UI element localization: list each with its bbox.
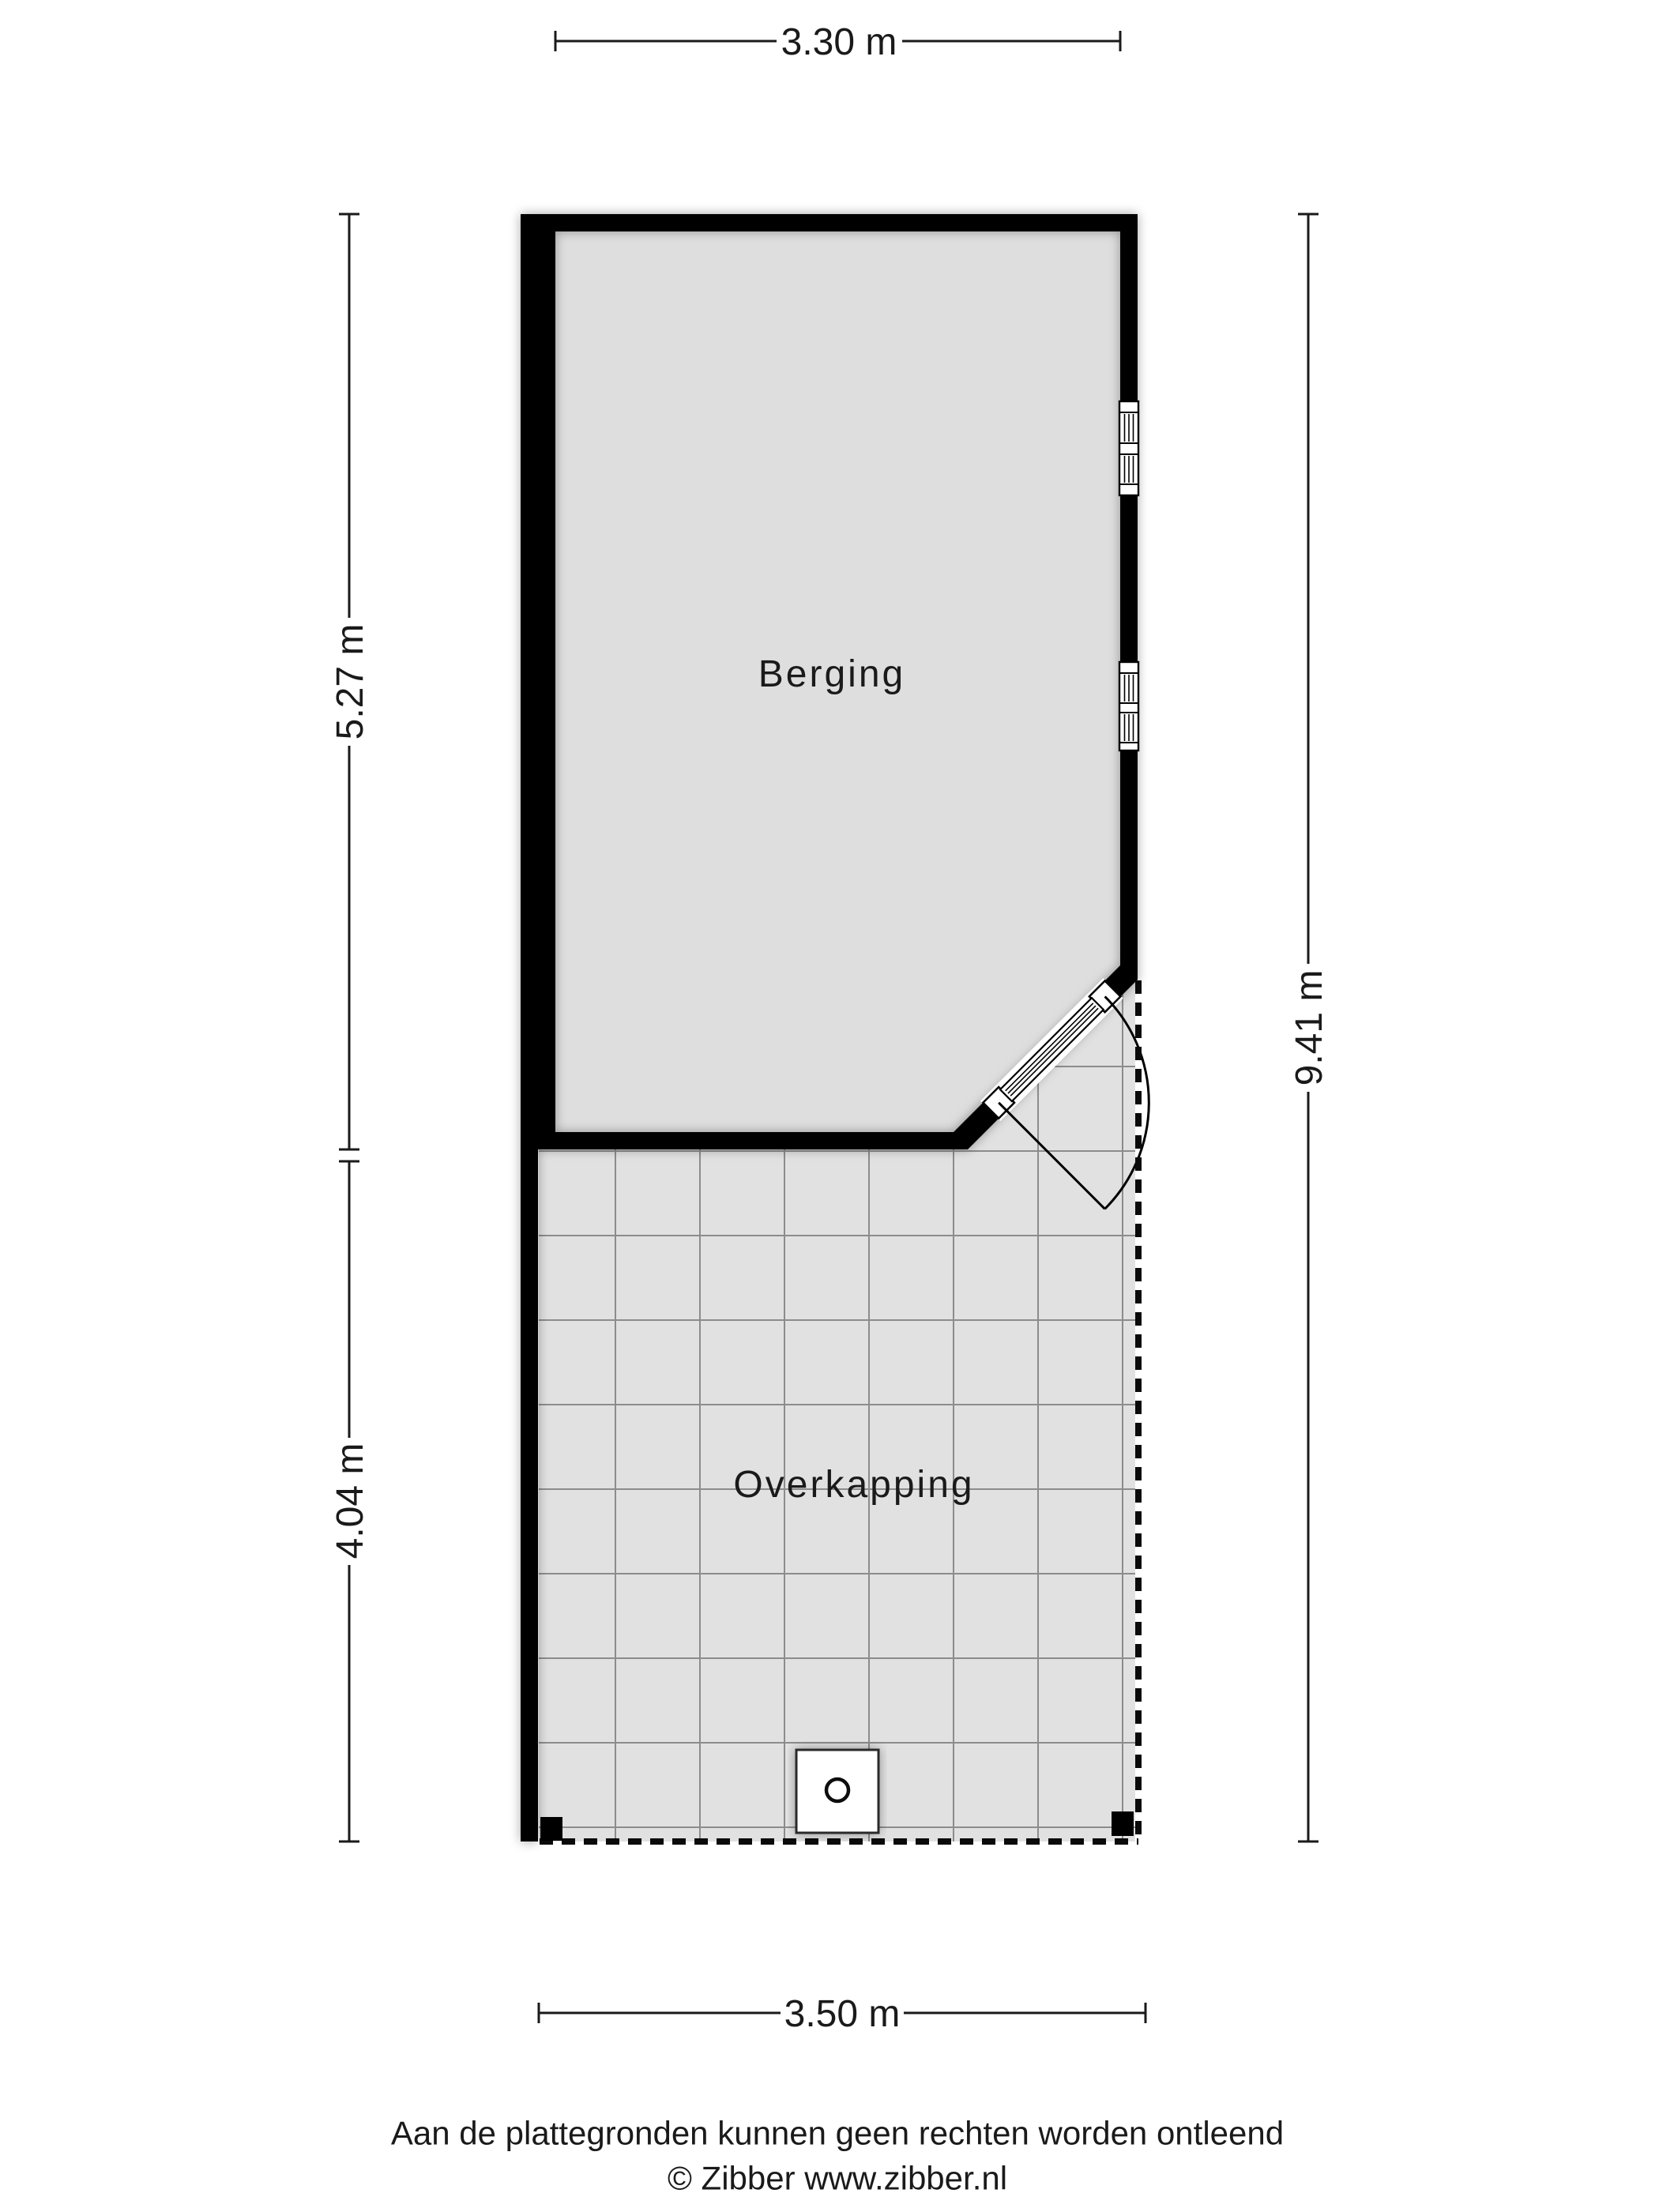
- dimension-left-lower-label: 4.04 m: [329, 1443, 371, 1559]
- post-right: [1112, 1811, 1134, 1836]
- appliance-symbol: [796, 1750, 878, 1833]
- dimension-top-label: 3.30 m: [781, 21, 897, 63]
- dimension-bottom: 3.50 m: [539, 1993, 1145, 2035]
- footer-disclaimer: Aan de plattegronden kunnen geen rechten…: [391, 2115, 1284, 2152]
- window-2: [1119, 662, 1138, 750]
- appliance-circle: [826, 1779, 848, 1801]
- dimension-left-lower: 4.04 m: [329, 1161, 371, 1841]
- footer-copyright: © Zibber www.zibber.nl: [668, 2160, 1007, 2197]
- dimension-left-upper: 5.27 m: [329, 214, 371, 1149]
- room-label-overkapping: Overkapping: [733, 1464, 974, 1506]
- post-left: [540, 1817, 562, 1841]
- window-1: [1119, 401, 1138, 495]
- floor-plan-canvas: 3.30 m 5.27 m 4.04 m 9.41 m 3.50 m Bergi…: [0, 0, 1659, 2212]
- dimension-bottom-label: 3.50 m: [784, 1993, 901, 2035]
- dimension-right-label: 9.41 m: [1288, 970, 1330, 1086]
- dimension-right: 9.41 m: [1288, 214, 1330, 1841]
- floor-plan-page: 3.30 m 5.27 m 4.04 m 9.41 m 3.50 m Bergi…: [0, 0, 1659, 2212]
- room-label-berging: Berging: [758, 653, 905, 695]
- dimension-top: 3.30 m: [555, 21, 1120, 63]
- dimension-left-upper-label: 5.27 m: [329, 624, 371, 740]
